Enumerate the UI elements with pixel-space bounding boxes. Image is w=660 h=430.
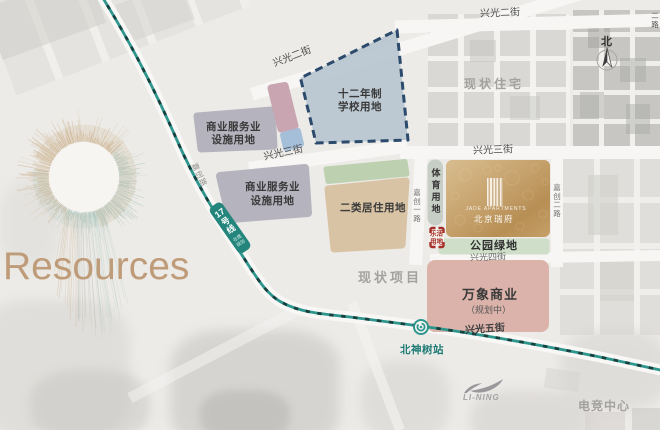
svg-text:乐活: 乐活: [430, 229, 444, 238]
svg-text:用地: 用地: [429, 237, 444, 246]
